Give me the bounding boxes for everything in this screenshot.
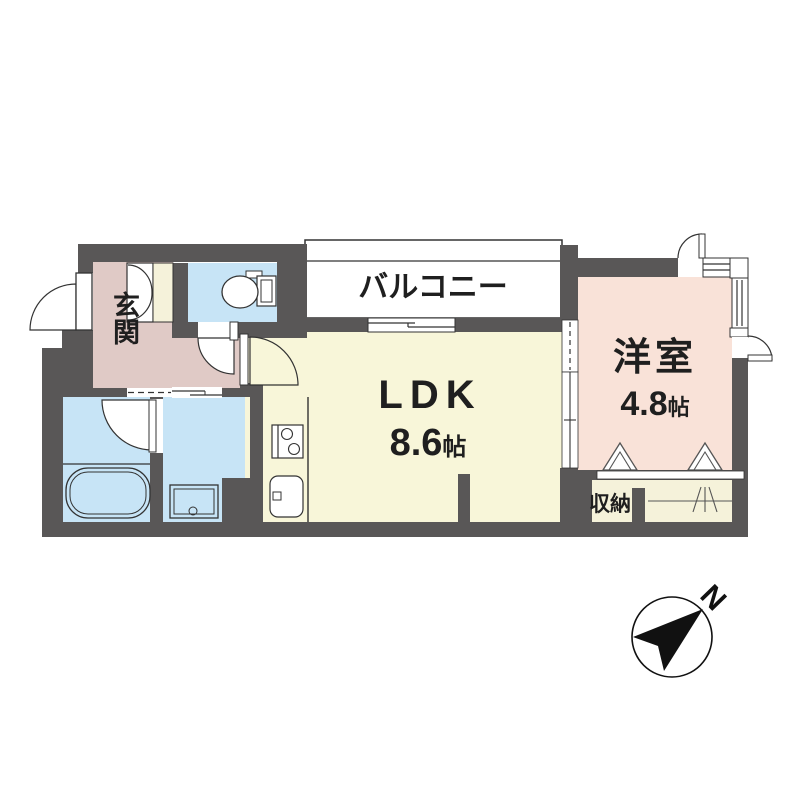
partition-fixed-panel bbox=[562, 320, 578, 372]
toilet-door-opening bbox=[198, 322, 230, 338]
toilet-door-panel bbox=[230, 322, 238, 340]
entrance-door bbox=[30, 273, 92, 330]
window-vertical bbox=[732, 278, 748, 328]
western-room-side-door bbox=[732, 336, 772, 361]
top-door-panel bbox=[699, 234, 705, 258]
bathroom-door-panel bbox=[149, 400, 156, 452]
window-sill-block bbox=[730, 328, 748, 337]
north-arrow-icon bbox=[633, 609, 703, 671]
entrance-step-opening bbox=[127, 388, 172, 397]
toilet-bowl bbox=[222, 276, 258, 308]
window-horizontal bbox=[703, 258, 730, 277]
entrance-door-swing-arc bbox=[30, 284, 76, 330]
closet-door-track bbox=[597, 471, 744, 479]
corner-post bbox=[730, 258, 748, 278]
ldk-label: LDK bbox=[378, 373, 481, 417]
top-door-swing-arc bbox=[678, 234, 702, 258]
western-room-label: 洋室 bbox=[613, 336, 697, 379]
floor-plan-drawing: バルコニー 玄関 LDK 8.6帖 洋室 4.8帖 収納 N bbox=[0, 0, 800, 800]
kitchen-sink bbox=[270, 476, 303, 517]
compass: N bbox=[632, 579, 732, 677]
balcony-window bbox=[368, 318, 455, 332]
storage-label: 収納 bbox=[589, 492, 631, 516]
entrance-door-panel bbox=[76, 273, 92, 330]
ldk-door-panel bbox=[240, 334, 248, 385]
entrance-label: 玄関 bbox=[109, 290, 139, 345]
western-room-top-door bbox=[678, 234, 705, 258]
washroom-sliding-door bbox=[172, 387, 222, 398]
side-door-opening bbox=[732, 337, 748, 358]
floor-plan-page: バルコニー 玄関 LDK 8.6帖 洋室 4.8帖 収納 N bbox=[0, 0, 800, 800]
ldk-western-partition bbox=[562, 320, 578, 468]
entrance-counter bbox=[153, 263, 173, 322]
balcony-label: バルコニー bbox=[358, 271, 507, 304]
side-door-panel bbox=[748, 355, 772, 361]
